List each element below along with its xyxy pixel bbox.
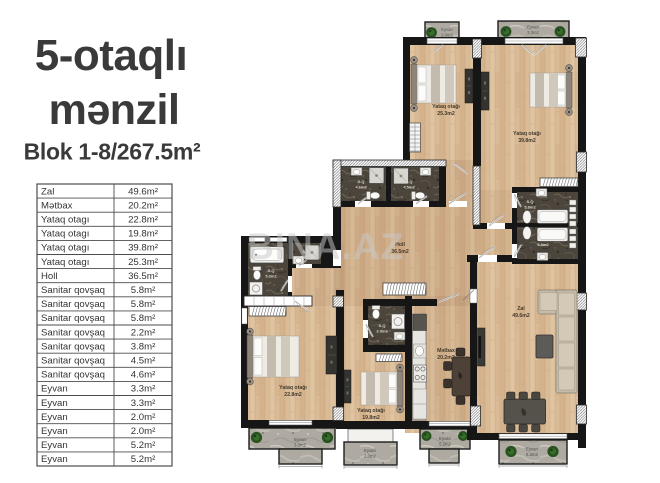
svg-text:Eyvan: Eyvan [294,437,306,442]
svg-text:S.Q: S.Q [379,323,386,328]
svg-text:Eyvan: Eyvan [41,440,68,451]
svg-text:5.8m2: 5.8m2 [537,242,549,247]
svg-text:5-otaqlı: 5-otaqlı [35,31,187,80]
svg-text:Sanitar qovşaq: Sanitar qovşaq [41,299,105,310]
svg-text:Yataq otağı: Yataq otağı [357,408,385,414]
svg-text:20.2m2: 20.2m2 [437,355,455,361]
svg-text:5.8m²: 5.8m² [131,285,156,296]
svg-text:Yataq otagı: Yataq otagı [41,229,89,240]
svg-text:Eyvan: Eyvan [41,412,68,423]
svg-text:Zal: Zal [41,186,54,197]
svg-text:Yataq otagı: Yataq otagı [41,215,89,226]
svg-text:4.5m²: 4.5m² [131,356,156,367]
svg-text:Sanitar qovşaq: Sanitar qovşaq [41,341,105,352]
svg-text:BINA.AZ: BINA.AZ [247,226,404,267]
svg-text:S.Q: S.Q [406,179,413,184]
svg-text:4.6m²: 4.6m² [131,370,156,381]
svg-text:3.8m²: 3.8m² [131,341,156,352]
svg-text:2.2m²: 2.2m² [131,327,156,338]
svg-text:4.6m2: 4.6m2 [355,185,367,190]
svg-text:Yataq otağı: Yataq otağı [513,131,541,137]
svg-text:S.Q: S.Q [358,179,365,184]
svg-text:22.8m²: 22.8m² [128,215,159,226]
svg-text:5.8m2: 5.8m2 [265,274,277,279]
svg-text:Blok 1-8/267.5m²: Blok 1-8/267.5m² [24,139,201,165]
svg-text:49.6m²: 49.6m² [128,186,159,197]
svg-text:Yataq otağı: Yataq otağı [279,385,307,391]
svg-text:2.0m2: 2.0m2 [441,33,453,38]
svg-text:2.0m²: 2.0m² [131,426,156,437]
svg-text:19.8m2: 19.8m2 [362,415,380,421]
svg-text:5.8m²: 5.8m² [131,299,156,310]
svg-text:S.Q: S.Q [268,268,275,273]
svg-text:25.3m2: 25.3m2 [437,111,455,117]
svg-text:3.3m²: 3.3m² [131,398,156,409]
svg-text:Mətbax: Mətbax [437,348,455,354]
svg-text:Eyvan: Eyvan [364,448,376,453]
svg-text:5.2m²: 5.2m² [131,454,156,465]
svg-text:Eyvan: Eyvan [41,426,68,437]
svg-text:Sanitar qovşaq: Sanitar qovşaq [41,285,105,296]
svg-text:5.2m²: 5.2m² [131,440,156,451]
svg-text:Sanitar qovşaq: Sanitar qovşaq [41,356,105,367]
svg-text:19.8m²: 19.8m² [128,229,159,240]
svg-text:4.5m2: 4.5m2 [403,185,415,190]
svg-text:3.3m2: 3.3m2 [294,443,306,448]
svg-text:49.6m2: 49.6m2 [512,313,530,319]
svg-text:22.8m2: 22.8m2 [284,392,302,398]
svg-text:Mətbax: Mətbax [41,200,73,211]
svg-text:3.3m²: 3.3m² [131,384,156,395]
svg-text:Eyvan: Eyvan [41,384,68,395]
svg-text:Holl: Holl [41,271,58,282]
svg-text:Eyvan: Eyvan [41,398,68,409]
svg-text:25.3m²: 25.3m² [128,257,159,268]
svg-text:mənzil: mənzil [49,86,180,134]
svg-text:5.2m2: 5.2m2 [526,452,538,457]
svg-text:2.0m2: 2.0m2 [364,454,376,459]
svg-text:Sanitar qovşaq: Sanitar qovşaq [41,313,105,324]
svg-text:20.2m²: 20.2m² [128,200,159,211]
svg-text:36.5m²: 36.5m² [128,271,159,282]
svg-text:3.8m2: 3.8m2 [376,329,388,334]
svg-text:2.0m²: 2.0m² [131,412,156,423]
svg-text:Yataq otagı: Yataq otagı [41,257,89,268]
svg-text:Eyvan: Eyvan [526,447,538,452]
svg-text:5.8m2: 5.8m2 [524,205,536,210]
svg-text:39.8m2: 39.8m2 [518,138,536,144]
svg-text:Eyvan: Eyvan [41,454,68,465]
svg-text:Eyvan: Eyvan [439,436,451,441]
svg-text:Sanitar qovşaq: Sanitar qovşaq [41,327,105,338]
svg-text:S.Q: S.Q [527,199,534,204]
svg-text:Eyvan: Eyvan [527,25,539,30]
svg-text:5.8m²: 5.8m² [131,313,156,324]
svg-text:Yataq otağı: Yataq otağı [432,104,460,110]
svg-text:Eyvan: Eyvan [441,27,453,32]
svg-text:Yataq otagı: Yataq otagı [41,243,89,254]
svg-text:3.3m2: 3.3m2 [527,30,539,35]
svg-text:Sanitar qovşaq: Sanitar qovşaq [41,370,105,381]
svg-text:39.8m²: 39.8m² [128,243,159,254]
svg-text:Zal: Zal [517,306,525,312]
svg-text:5.2m2: 5.2m2 [439,442,451,447]
